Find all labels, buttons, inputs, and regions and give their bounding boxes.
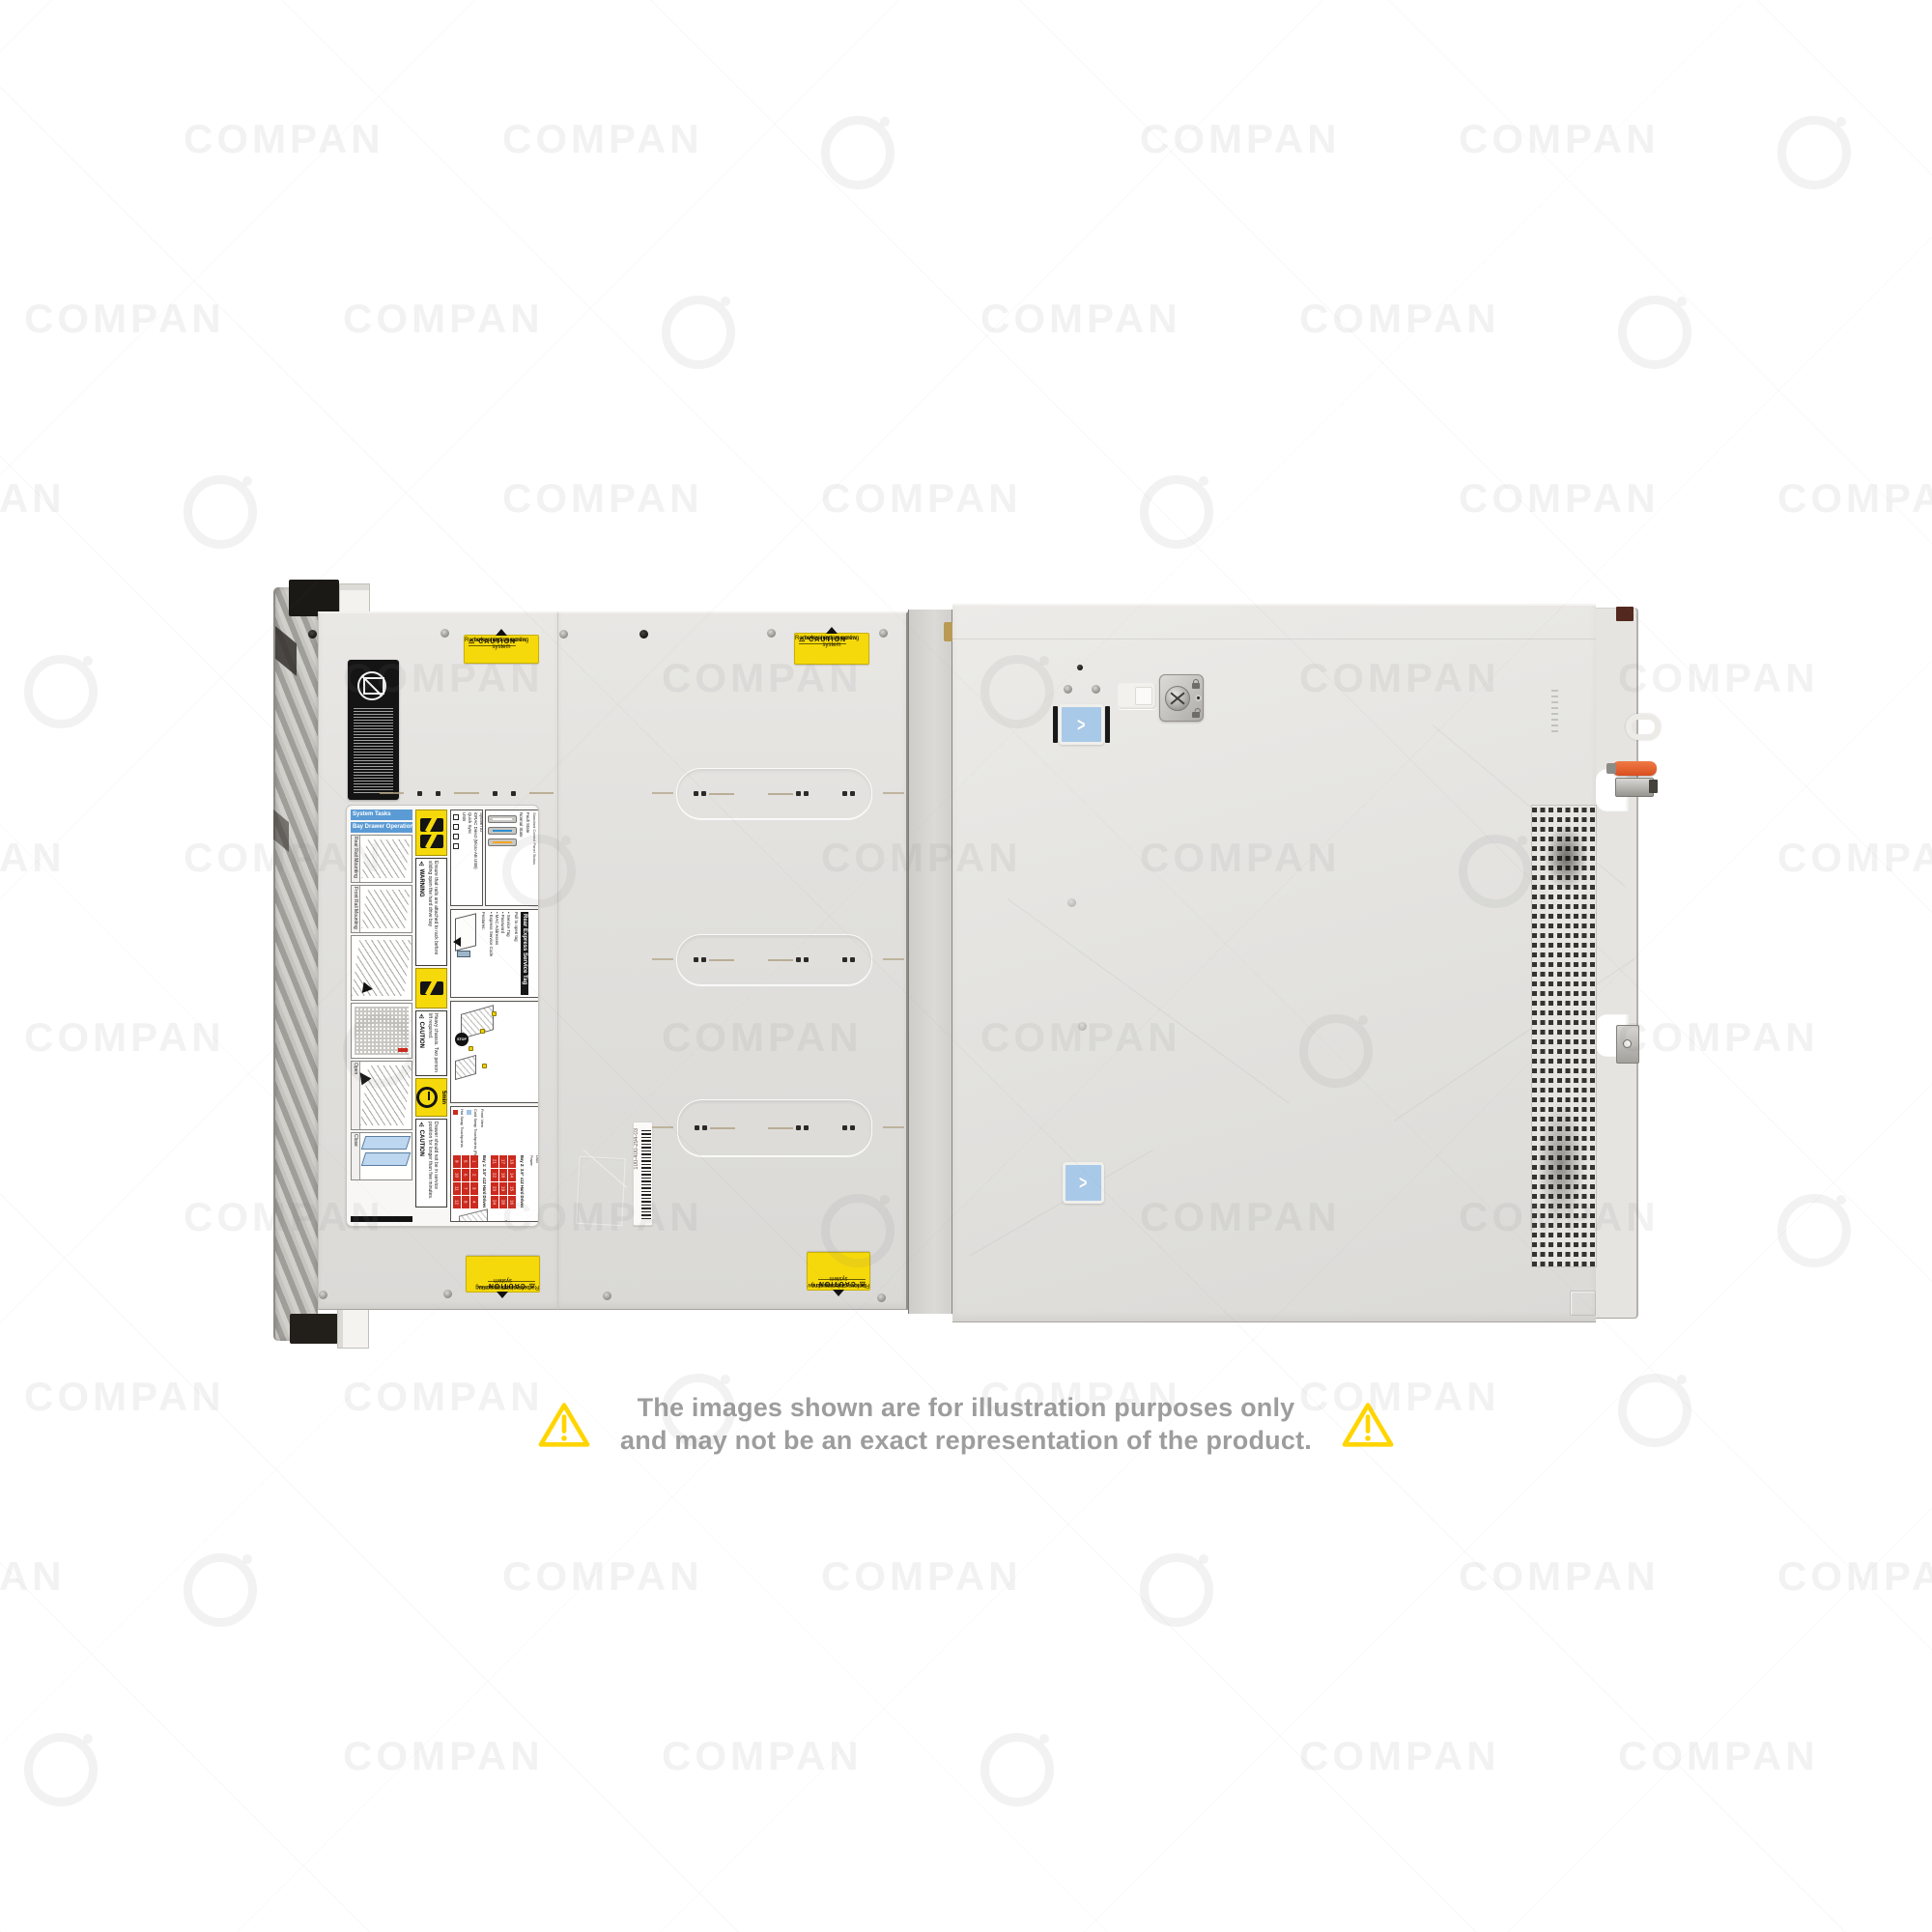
- lid-edge-line: [952, 639, 1596, 639]
- rear-ring-handle[interactable]: [1626, 714, 1661, 740]
- rail-bracket-bottom: [337, 1308, 369, 1349]
- pinch-hazard-icon: [415, 810, 447, 856]
- cold-swap-swatch: [467, 1110, 471, 1115]
- screw: [440, 629, 449, 638]
- caution-drawer-box: ⚠ CAUTION Drawer should not be in servic…: [415, 1119, 447, 1207]
- drive-bay-cell: 4: [470, 1196, 478, 1208]
- system-tasks-header: System Tasks: [351, 810, 412, 820]
- rivet: [1064, 685, 1072, 694]
- disclaimer-line-1: The images shown are for illustration pu…: [620, 1392, 1312, 1425]
- panel-vent-slits: [380, 787, 554, 799]
- service-instruction-label: System Tasks Bay Drawer Operation Rear R…: [346, 805, 539, 1227]
- legend-glyphs: [453, 812, 459, 903]
- drive-bay-cell: 14: [508, 1169, 516, 1181]
- drive-bay-cell: 2: [470, 1169, 478, 1181]
- watermark-text: COMPAN: [502, 116, 703, 162]
- no-service-prohibition-icon: [357, 671, 386, 700]
- drive-bay-cell: 3: [470, 1182, 478, 1195]
- stamped-handle-recess: [676, 934, 872, 985]
- rear-latch-bracket-top[interactable]: [1615, 778, 1654, 797]
- screw: [877, 1293, 886, 1302]
- watermark-text: COMPAN: [24, 1014, 225, 1061]
- watermark-text: COMPAN: [1459, 1553, 1660, 1600]
- drive-bay-cell: 15: [508, 1182, 516, 1195]
- watermark-text: COMPAN: [1777, 475, 1932, 522]
- led-state-bars: [488, 812, 517, 903]
- vent-shadow: [1545, 824, 1587, 892]
- screw: [767, 629, 776, 638]
- caution-heavy-box: ⚠ CAUTION Heavy chassis. Two person lift…: [415, 1010, 447, 1076]
- service-label-illustrations: System Tasks Bay Drawer Operation Rear R…: [351, 810, 412, 1222]
- disclaimer-text: The images shown are for illustration pu…: [620, 1392, 1312, 1458]
- lever-pivot: [1606, 763, 1616, 774]
- blue-release-latch-top[interactable]: >: [1059, 704, 1104, 745]
- blue-release-latch-bottom[interactable]: >: [1063, 1162, 1104, 1204]
- icon-legend-box: System IDiDRAC Direct (Micro-AB USB)Quic…: [450, 810, 483, 906]
- product-photo-canvas: ⚠ CAUTION Remove shipping screw before r…: [0, 0, 1932, 1932]
- watermark-text: COMPAN: [1459, 475, 1660, 522]
- cover-lock-plate: [1159, 674, 1204, 722]
- watermark-logo-icon: [24, 1733, 98, 1806]
- lock-detent-hole: [1195, 695, 1202, 701]
- chevron-right-icon: >: [1079, 1171, 1087, 1194]
- led-subtitle: Standard Control Panel Status: [532, 812, 537, 903]
- barcode-icon: [641, 1130, 651, 1219]
- panel-dash: [652, 958, 673, 960]
- caution-label-top-left: ⚠ CAUTION Remove shipping screw before r…: [464, 635, 539, 664]
- screw: [559, 630, 568, 639]
- drive-bay-cell: 6: [462, 1169, 469, 1181]
- list-item: • Service Tag: [505, 912, 511, 995]
- service-label-warnings: ⚠ WARNING Ensure that rails are attached…: [415, 810, 447, 1222]
- top-cover-panel-rear: [952, 604, 1596, 1322]
- config-isometric-drawing: [453, 1210, 539, 1219]
- embossed-mark: [576, 1156, 626, 1226]
- drive-bay-cell: 12: [453, 1196, 461, 1208]
- list-item: Quick Sync: [467, 812, 472, 903]
- watermark-logo-icon: [1777, 116, 1851, 189]
- rivet: [1092, 685, 1100, 694]
- drive-bay-cell: 21: [491, 1155, 498, 1168]
- bay-drawer-header: Bay Drawer Operation: [351, 822, 412, 833]
- list-item: USB: [534, 1155, 539, 1205]
- drive-bay-cell: 1: [470, 1155, 478, 1168]
- rear-express-service-tag-box: Features: • Service Tag• Password• MAC A…: [450, 909, 539, 998]
- watermark-text: COMPAN: [0, 835, 66, 881]
- screw: [319, 1291, 327, 1299]
- icon-legend-items: System IDiDRAC Direct (Micro-AB USB)Quic…: [461, 812, 483, 903]
- rear-express-title: Rear Express Service Tag: [521, 912, 528, 995]
- drive-bay-cell: 10: [453, 1169, 461, 1181]
- hot-swap-label: Hot Swap Touchpoints: [460, 1109, 465, 1148]
- warning-triangle-icon: [1341, 1401, 1395, 1449]
- configuration-layout-box: Hot Swap Touchpoints Cold Swap Touchpoin…: [450, 1106, 539, 1222]
- screw: [639, 630, 648, 639]
- watermark-text: COMPAN: [24, 296, 225, 342]
- drive-bay-cell: 18: [499, 1169, 507, 1181]
- watermark-logo-icon: [24, 655, 98, 728]
- front-bezel: [273, 587, 318, 1341]
- padlock-closed-icon: [1192, 683, 1200, 689]
- panel-dash: [883, 1126, 904, 1128]
- features-heading: Features:: [480, 912, 486, 995]
- bay2-grid: 211713221814231915242016: [491, 1155, 516, 1208]
- watermark-text: COMPAN: [821, 1553, 1022, 1600]
- watermark-text: COMPAN: [1299, 1733, 1500, 1779]
- drive-bay-cell: 5: [462, 1155, 469, 1168]
- lid-dimple: [1067, 898, 1076, 907]
- chevron-right-icon: >: [1077, 713, 1085, 736]
- caution-label-bottom-middle: ⚠ CAUTION Remove shipping screw before r…: [807, 1252, 870, 1291]
- watermark-text: COMPAN: [1618, 1733, 1819, 1779]
- drive-bay-cell: 20: [499, 1196, 507, 1208]
- watermark-logo-icon: [662, 296, 735, 369]
- drive-bay-cell: 24: [491, 1196, 498, 1208]
- drive-bay-cell: 23: [491, 1182, 498, 1195]
- screw: [443, 1290, 452, 1298]
- barcode-text: 100-400-294-03: [634, 1128, 639, 1170]
- disclaimer: The images shown are for illustration pu…: [0, 1392, 1932, 1458]
- warning-box: ⚠ WARNING Ensure that rails are attached…: [415, 858, 447, 966]
- rivet: [1077, 665, 1083, 670]
- watermark-text: COMPAN: [502, 1553, 703, 1600]
- open-drawer-illustration: Open: [351, 1061, 412, 1130]
- caution-label-top-middle: ⚠ CAUTION Remove shipping screw before r…: [794, 633, 869, 665]
- drive-bay-cell: 13: [508, 1155, 516, 1168]
- screw: [879, 629, 888, 638]
- watermark-logo-icon: [1618, 296, 1691, 369]
- vent-shadow: [1537, 1101, 1585, 1227]
- watermark-text: COMPAN: [1777, 1553, 1932, 1600]
- bay2-caption: Bay 2: 3.5" x12 Hard Drives: [520, 1155, 525, 1207]
- service-label-sections: System IDiDRAC Direct (Micro-AB USB)Quic…: [450, 810, 539, 1222]
- watermark-text: COMPAN: [502, 475, 703, 522]
- stamped-slide-mark: [1118, 683, 1156, 709]
- rear-latch-end: [1649, 780, 1658, 793]
- latch-guide-bar: [1105, 706, 1110, 743]
- disclaimer-line-2: and may not be an exact representation o…: [620, 1425, 1312, 1458]
- caution-label-bottom-left: ⚠ CAUTION Remove shipping screw before r…: [466, 1256, 540, 1293]
- list-item: iDRAC Direct (Micro-AB USB): [472, 812, 478, 903]
- drive-bay-cell: 17: [499, 1155, 507, 1168]
- stamped-handle-recess: [676, 768, 872, 819]
- stamped-handle-recess: [677, 1099, 872, 1156]
- front-rail-illustration: Front Rail Mounting: [351, 885, 412, 933]
- screw: [308, 630, 317, 639]
- list-item: • MAC Addresses: [494, 912, 499, 995]
- watermark-logo-icon: [1140, 475, 1213, 549]
- watermark-logo-icon: [184, 475, 257, 549]
- watermark-text: COMPAN: [662, 1733, 863, 1779]
- shipping-screw-removal-box: STOP Remove shipping screws before rack …: [450, 1001, 539, 1103]
- service-tag-illustration: [453, 912, 478, 995]
- bay1-grid: 951106211731284: [453, 1155, 478, 1208]
- regulatory-label: [348, 660, 399, 800]
- watermark-text: COMPAN: [343, 296, 544, 342]
- panel-dash: [652, 792, 673, 794]
- shipping-screw-illustration: STOP: [453, 1004, 539, 1100]
- server-top-view: ⚠ CAUTION Remove shipping screw before r…: [273, 580, 1662, 1348]
- orange-release-lever[interactable]: [1612, 761, 1657, 776]
- drive-bay-cell: 22: [491, 1169, 498, 1181]
- front-view-label: Front View: [480, 1109, 485, 1127]
- warning-triangle-icon: [537, 1401, 591, 1449]
- pinch-hazard-icon: [415, 968, 447, 1009]
- keypad-illustration: [351, 1003, 412, 1059]
- watermark-text: COMPAN: [0, 475, 66, 522]
- rear-rail-illustration: Rear Rail Mounting: [351, 835, 412, 883]
- watermark-text: COMPAN: [0, 1553, 66, 1600]
- list-item: System ID: [478, 812, 483, 903]
- label-corner-mark: [351, 1216, 412, 1222]
- watermark-logo-icon: [980, 1733, 1054, 1806]
- barcode-label: 100-400-294-03: [633, 1122, 653, 1226]
- chassis-hinge-strip: [908, 610, 952, 1314]
- screw: [603, 1292, 611, 1300]
- stop-icon: STOP: [455, 1033, 469, 1046]
- drive-bay-cell: 9: [453, 1155, 461, 1168]
- drive-bay-cell: 19: [499, 1182, 507, 1195]
- list-item: • Password: [499, 912, 505, 995]
- drive-bay-cell: 16: [508, 1196, 516, 1208]
- drive-bay-cell: 11: [453, 1182, 461, 1195]
- latch-guide-bar: [1053, 706, 1058, 743]
- stamped-square: [1570, 1291, 1596, 1316]
- service-tag-feature-list: • Service Tag• Password• MAC Addresses• …: [488, 912, 511, 995]
- rail-attach-illustration: [351, 935, 412, 1001]
- rear-corner-tab: [1616, 607, 1634, 621]
- watermark-logo-icon: [184, 1553, 257, 1627]
- panel-dash: [652, 1126, 673, 1128]
- regulatory-microtext: [354, 706, 393, 793]
- config-side-labels: System ID/Status Light BarHard Drive Act…: [528, 1155, 539, 1205]
- lock-screw[interactable]: [1165, 686, 1190, 711]
- five-minute-clock-icon: 5min: [415, 1078, 447, 1117]
- list-item: • Express Service Code: [488, 912, 494, 995]
- drive-bay-cell: 8: [462, 1196, 469, 1208]
- service-tag-features: Features:: [480, 912, 486, 995]
- watermark-text: COMPAN: [343, 1733, 544, 1779]
- pull-to-open-note: Pull to open tag: [513, 912, 519, 995]
- front-corner-cap-bottom: [290, 1314, 338, 1344]
- engraved-marks: [1551, 688, 1558, 732]
- lid-dimple: [1078, 1022, 1087, 1031]
- hot-swap-swatch: [453, 1110, 458, 1115]
- list-item: USB: [461, 812, 467, 903]
- padlock-open-icon: [1192, 712, 1200, 718]
- bay1-caption: Bay 1: 3.5" x12 Hard Drives: [482, 1155, 487, 1207]
- watermark-text: COMPAN: [1459, 116, 1660, 162]
- watermark-text: COMPAN: [184, 116, 384, 162]
- watermark-logo-icon: [1777, 1194, 1851, 1267]
- latch-screw-hole: [1623, 1039, 1632, 1048]
- watermark-logo-icon: [1140, 1553, 1213, 1627]
- watermark-text: COMPAN: [1299, 296, 1500, 342]
- cold-swap-label: Cold Swap Touchpoints (Rear): [473, 1109, 478, 1153]
- led-behavior-box: Normal State Fault State Standard Contro…: [485, 810, 539, 906]
- watermark-text: COMPAN: [1140, 116, 1341, 162]
- watermark-text: COMPAN: [1777, 835, 1932, 881]
- close-drawer-illustration: Close: [351, 1132, 412, 1180]
- panel-dash: [883, 792, 904, 794]
- drive-bay-cell: 7: [462, 1182, 469, 1195]
- list-item: Power: [528, 1155, 534, 1205]
- watermark-text: COMPAN: [980, 296, 1181, 342]
- watermark-logo-icon: [821, 116, 895, 189]
- watermark-text: COMPAN: [821, 475, 1022, 522]
- panel-dash: [883, 958, 904, 960]
- drive-bay-tables: 951106211731284 Bay 1: 3.5" x12 Hard Dri…: [453, 1155, 539, 1208]
